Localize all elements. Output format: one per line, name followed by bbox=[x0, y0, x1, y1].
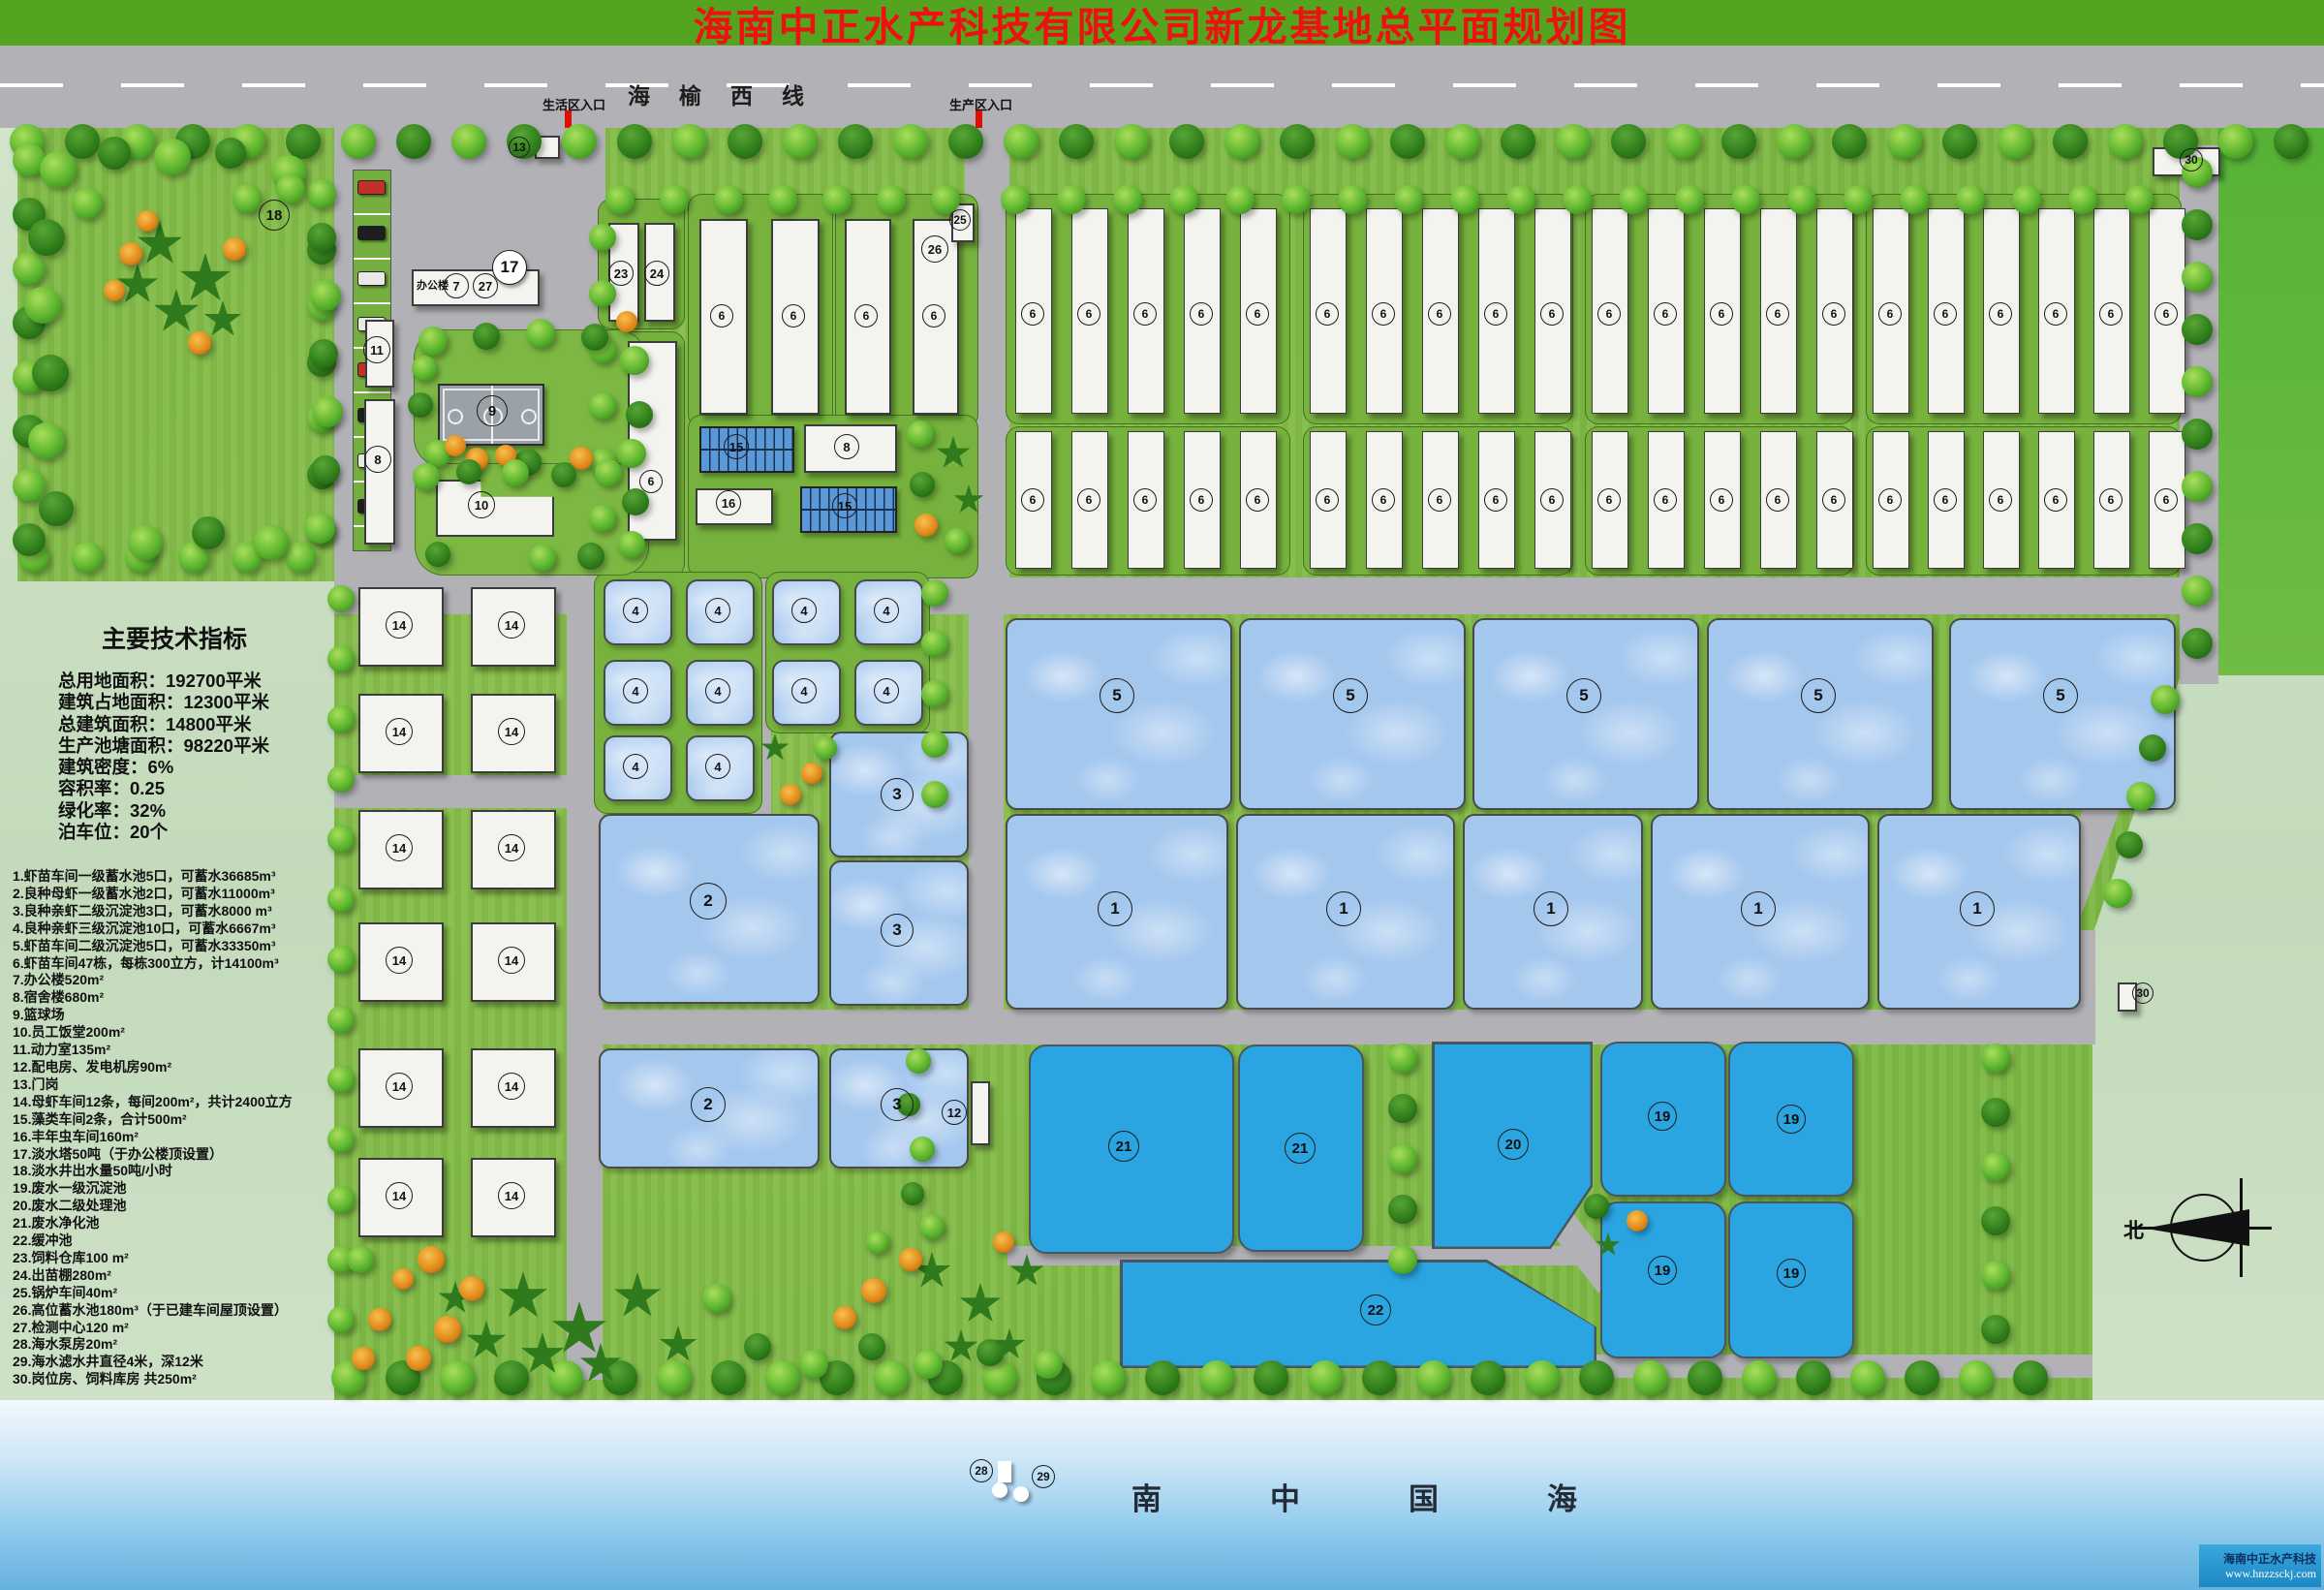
legend-item: 15.藻类车间2条，合计500m² bbox=[13, 1111, 293, 1129]
flowering-tree-icon bbox=[406, 1346, 431, 1371]
flowering-tree-icon bbox=[119, 242, 142, 265]
tree-icon bbox=[1525, 1360, 1560, 1395]
tree-icon bbox=[589, 392, 616, 420]
tree-icon bbox=[1169, 185, 1198, 214]
tree-icon bbox=[2274, 124, 2309, 159]
tree-icon bbox=[24, 287, 61, 324]
generator-12 bbox=[971, 1081, 990, 1145]
tree-icon bbox=[921, 781, 948, 808]
map-marker-6: 6 bbox=[1021, 488, 1044, 512]
tree-icon bbox=[620, 346, 649, 375]
tree-icon bbox=[2116, 831, 2143, 858]
tree-icon bbox=[1887, 124, 1922, 159]
tree-icon bbox=[396, 124, 431, 159]
tree-icon bbox=[660, 185, 689, 214]
tree-icon bbox=[2182, 471, 2213, 502]
watermark-company: 海南中正水产科技 bbox=[2223, 1552, 2316, 1567]
legend-item: 2.良种母虾一级蓄水池2口，可蓄水11000m³ bbox=[13, 886, 293, 903]
tree-icon bbox=[622, 488, 649, 515]
tree-icon bbox=[502, 459, 529, 486]
tree-icon bbox=[1506, 185, 1535, 214]
tree-icon bbox=[327, 886, 355, 913]
road-name: 海榆西线 bbox=[628, 78, 833, 110]
filter-well-shape bbox=[992, 1482, 1007, 1498]
tree-icon bbox=[1850, 1360, 1885, 1395]
tree-icon bbox=[72, 188, 103, 219]
map-marker-14: 14 bbox=[386, 1182, 413, 1209]
tree-icon bbox=[1611, 124, 1646, 159]
site-plan-canvas: 海榆西线 海南中正水产科技有限公司新龙基地总平面规划图 生活区入口 生产区入口 … bbox=[0, 0, 2324, 1590]
map-marker-4: 4 bbox=[705, 754, 730, 779]
map-marker-6: 6 bbox=[1372, 488, 1395, 512]
map-marker-24: 24 bbox=[644, 261, 669, 286]
page-title: 海南中正水产科技有限公司新龙基地总平面规划图 bbox=[694, 0, 1631, 52]
tree-icon bbox=[562, 124, 597, 159]
tree-icon bbox=[473, 323, 500, 350]
tree-icon bbox=[327, 645, 355, 672]
map-marker-6: 6 bbox=[1766, 488, 1789, 512]
tree-icon bbox=[838, 124, 873, 159]
legend-item: 24.出苗棚280m² bbox=[13, 1267, 293, 1285]
map-marker-6: 6 bbox=[1190, 488, 1213, 512]
map-marker-14: 14 bbox=[498, 1073, 525, 1100]
tech-line: 绿化率：32% bbox=[58, 800, 349, 822]
tree-icon bbox=[2182, 628, 2213, 659]
tree-icon bbox=[1335, 124, 1370, 159]
tree-icon bbox=[1282, 185, 1311, 214]
tree-icon bbox=[327, 1066, 355, 1093]
legend-item: 3.良种亲虾二级沉淀池3口，可蓄水8000 m³ bbox=[13, 903, 293, 920]
tree-icon bbox=[589, 280, 616, 307]
tree-icon bbox=[1563, 185, 1592, 214]
tree-icon bbox=[456, 459, 481, 484]
map-marker-4: 4 bbox=[623, 678, 648, 703]
map-marker-6: 6 bbox=[1077, 302, 1100, 326]
flowering-tree-icon bbox=[833, 1306, 856, 1329]
map-marker-29: 29 bbox=[1032, 1465, 1055, 1488]
tree-icon bbox=[311, 455, 340, 484]
map-marker-6: 6 bbox=[1654, 302, 1677, 326]
tree-icon bbox=[2124, 185, 2154, 214]
tree-icon bbox=[858, 1333, 885, 1360]
tree-icon bbox=[327, 1306, 355, 1333]
tree-icon bbox=[276, 174, 305, 203]
map-marker-4: 4 bbox=[623, 598, 648, 623]
tree-icon bbox=[526, 319, 555, 348]
offsite-green-right bbox=[2218, 128, 2324, 675]
tree-icon bbox=[728, 124, 762, 159]
legend-item: 6.虾苗车间47栋，每栋300立方，计14100m³ bbox=[13, 955, 293, 973]
tree-icon bbox=[2139, 734, 2166, 762]
technical-indicators: 主要技术指标 总用地面积：192700平米建筑占地面积：12300平米总建筑面积… bbox=[58, 620, 349, 843]
tree-icon bbox=[1998, 124, 2032, 159]
flowering-tree-icon bbox=[368, 1308, 391, 1331]
tree-icon bbox=[1004, 124, 1038, 159]
tree-icon bbox=[413, 463, 440, 490]
legend-item: 23.饲料仓库100 m² bbox=[13, 1250, 293, 1267]
tree-icon bbox=[2053, 124, 2088, 159]
tree-icon bbox=[98, 137, 131, 170]
map-marker-14: 14 bbox=[386, 611, 413, 639]
tree-icon bbox=[657, 1360, 692, 1395]
map-marker-6: 6 bbox=[639, 470, 663, 493]
tree-icon bbox=[1091, 1360, 1126, 1395]
tree-icon bbox=[1388, 1044, 1417, 1073]
map-marker-6: 6 bbox=[854, 304, 878, 327]
tree-icon bbox=[412, 356, 437, 381]
court-circle bbox=[521, 409, 537, 424]
map-marker-14: 14 bbox=[498, 947, 525, 974]
tree-icon bbox=[2126, 782, 2155, 811]
tree-icon bbox=[874, 1360, 909, 1395]
map-marker-11: 11 bbox=[363, 336, 390, 363]
flowering-tree-icon bbox=[137, 210, 158, 232]
map-marker-4: 4 bbox=[791, 598, 817, 623]
pond bbox=[1707, 618, 1934, 810]
legend-item: 21.废水净化池 bbox=[13, 1215, 293, 1232]
map-marker-3: 3 bbox=[881, 914, 914, 947]
tree-icon bbox=[72, 542, 103, 573]
map-marker-6: 6 bbox=[1710, 488, 1733, 512]
tree-icon bbox=[327, 826, 355, 853]
map-marker-14: 14 bbox=[498, 611, 525, 639]
legend-item: 13.门岗 bbox=[13, 1076, 293, 1094]
tree-icon bbox=[1584, 1194, 1609, 1219]
map-marker-19: 19 bbox=[1777, 1259, 1806, 1288]
map-marker-6: 6 bbox=[2099, 488, 2123, 512]
tree-icon bbox=[307, 223, 336, 252]
map-marker-9: 9 bbox=[477, 395, 508, 426]
tree-icon bbox=[1254, 1360, 1288, 1395]
flowering-tree-icon bbox=[801, 763, 822, 784]
tree-icon bbox=[1501, 124, 1535, 159]
flowering-tree-icon bbox=[616, 311, 637, 332]
tree-icon bbox=[13, 469, 46, 502]
compass-north-label: 北 bbox=[2123, 1215, 2144, 1244]
map-marker-1: 1 bbox=[1960, 891, 1995, 926]
flowering-tree-icon bbox=[434, 1316, 461, 1343]
tree-icon bbox=[921, 731, 948, 758]
tree-icon bbox=[307, 179, 336, 208]
map-marker-6: 6 bbox=[1597, 302, 1621, 326]
flowering-tree-icon bbox=[418, 1246, 445, 1273]
map-marker-5: 5 bbox=[1801, 678, 1836, 713]
map-marker-5: 5 bbox=[1566, 678, 1601, 713]
tree-icon bbox=[425, 542, 450, 567]
tree-icon bbox=[451, 124, 486, 159]
map-marker-6: 6 bbox=[1021, 302, 1044, 326]
tree-icon bbox=[906, 1048, 931, 1074]
tree-icon bbox=[1169, 124, 1204, 159]
tree-icon bbox=[617, 439, 646, 468]
tree-icon bbox=[1225, 185, 1255, 214]
map-marker-6: 6 bbox=[1710, 302, 1733, 326]
tree-icon bbox=[1787, 185, 1816, 214]
flowering-tree-icon bbox=[914, 514, 938, 537]
tree-icon bbox=[1619, 185, 1648, 214]
map-marker-6: 6 bbox=[1540, 488, 1564, 512]
tree-icon bbox=[1394, 185, 1423, 214]
tree-icon bbox=[494, 1360, 529, 1395]
road bbox=[969, 614, 1004, 1044]
tree-icon bbox=[1777, 124, 1812, 159]
map-marker-6: 6 bbox=[1372, 302, 1395, 326]
road bbox=[334, 775, 567, 808]
tree-icon bbox=[1666, 124, 1701, 159]
legend-item: 10.员工饭堂200m² bbox=[13, 1024, 293, 1042]
tree-icon bbox=[440, 1360, 475, 1395]
flowering-tree-icon bbox=[352, 1347, 375, 1370]
pond bbox=[1006, 618, 1232, 810]
flowering-tree-icon bbox=[993, 1231, 1014, 1253]
tree-icon bbox=[312, 396, 343, 427]
map-marker-1: 1 bbox=[1098, 891, 1132, 926]
map-marker-6: 6 bbox=[2154, 302, 2178, 326]
tree-icon bbox=[605, 185, 635, 214]
map-marker-6: 6 bbox=[1934, 488, 1957, 512]
tree-icon bbox=[65, 124, 100, 159]
map-marker-6: 6 bbox=[1484, 302, 1507, 326]
tree-icon bbox=[919, 1214, 945, 1239]
tree-icon bbox=[702, 1284, 731, 1313]
map-marker-14: 14 bbox=[386, 718, 413, 745]
legend-item: 28.海水泵房20m² bbox=[13, 1336, 293, 1354]
map-marker-2: 2 bbox=[690, 883, 727, 920]
tree-icon bbox=[711, 1360, 746, 1395]
tree-icon bbox=[1981, 1044, 2010, 1073]
legend-item: 12.配电房、发电机房90m² bbox=[13, 1059, 293, 1076]
tree-icon bbox=[1796, 1360, 1831, 1395]
technical-indicators-title: 主要技术指标 bbox=[58, 620, 291, 655]
map-marker-22: 22 bbox=[1360, 1294, 1391, 1325]
tree-icon bbox=[39, 491, 74, 526]
tree-icon bbox=[1388, 1094, 1417, 1123]
tree-icon bbox=[28, 422, 65, 459]
legend-item: 29.海水滤水井直径4米，深12米 bbox=[13, 1354, 293, 1371]
map-marker-14: 14 bbox=[386, 947, 413, 974]
map-marker-6: 6 bbox=[782, 304, 805, 327]
map-marker-28: 28 bbox=[970, 1459, 993, 1482]
map-marker-6: 6 bbox=[2044, 488, 2067, 512]
map-marker-21: 21 bbox=[1285, 1133, 1316, 1164]
tree-icon bbox=[2182, 366, 2213, 397]
map-marker-5: 5 bbox=[1100, 678, 1134, 713]
tech-line: 总建筑面积：14800平米 bbox=[58, 714, 349, 735]
map-marker-6: 6 bbox=[1246, 302, 1269, 326]
map-marker-6: 6 bbox=[2044, 302, 2067, 326]
tree-icon bbox=[1471, 1360, 1505, 1395]
tech-line: 泊车位：20个 bbox=[58, 822, 349, 843]
map-marker-19: 19 bbox=[1648, 1102, 1677, 1131]
map-marker-1: 1 bbox=[1534, 891, 1568, 926]
pond bbox=[1239, 618, 1466, 810]
tree-icon bbox=[765, 1360, 800, 1395]
tree-icon bbox=[1199, 1360, 1234, 1395]
map-marker-14: 14 bbox=[386, 1073, 413, 1100]
tree-icon bbox=[589, 224, 616, 251]
tree-icon bbox=[192, 516, 225, 549]
tree-icon bbox=[32, 355, 69, 391]
map-marker-4: 4 bbox=[623, 754, 648, 779]
tree-icon bbox=[1959, 1360, 1994, 1395]
tree-icon bbox=[408, 392, 433, 418]
tree-icon bbox=[2151, 685, 2180, 714]
map-marker-6: 6 bbox=[1597, 488, 1621, 512]
tree-icon bbox=[341, 124, 376, 159]
map-marker-10: 10 bbox=[468, 491, 495, 518]
legend-item: 8.宿舍楼680m² bbox=[13, 989, 293, 1007]
tree-icon bbox=[595, 459, 622, 486]
map-marker-6: 6 bbox=[1133, 302, 1157, 326]
map-marker-6: 6 bbox=[1133, 488, 1157, 512]
map-marker-6: 6 bbox=[1654, 488, 1677, 512]
map-marker-1: 1 bbox=[1741, 891, 1776, 926]
map-marker-16: 16 bbox=[716, 490, 741, 515]
map-marker-6: 6 bbox=[2154, 488, 2178, 512]
tree-icon bbox=[1388, 1195, 1417, 1224]
tree-icon bbox=[1981, 1261, 2010, 1290]
road-centerline bbox=[0, 83, 2324, 87]
map-marker-6: 6 bbox=[1822, 302, 1845, 326]
tree-icon bbox=[1832, 124, 1867, 159]
tree-icon bbox=[2013, 1360, 2048, 1395]
map-marker-6: 6 bbox=[1316, 488, 1339, 512]
tree-icon bbox=[910, 1137, 935, 1162]
tree-icon bbox=[327, 765, 355, 793]
tree-icon bbox=[551, 462, 576, 487]
map-marker-1: 1 bbox=[1326, 891, 1361, 926]
map-marker-5: 5 bbox=[1333, 678, 1368, 713]
map-marker-6: 6 bbox=[1878, 488, 1902, 512]
map-marker-4: 4 bbox=[705, 598, 730, 623]
pump-house-shape bbox=[998, 1461, 1011, 1482]
tree-icon bbox=[327, 1006, 355, 1033]
tree-icon bbox=[327, 1186, 355, 1213]
tree-icon bbox=[1362, 1360, 1397, 1395]
tree-icon bbox=[2182, 576, 2213, 607]
tree-icon bbox=[617, 124, 652, 159]
map-marker-15: 15 bbox=[832, 493, 857, 518]
map-marker-19: 19 bbox=[1648, 1256, 1677, 1285]
tree-icon bbox=[1388, 1245, 1417, 1274]
legend-item: 14.母虾车间12条，每间200m²，共计2400立方 bbox=[13, 1094, 293, 1111]
tree-icon bbox=[347, 1246, 374, 1273]
map-marker-4: 4 bbox=[791, 678, 817, 703]
tree-icon bbox=[154, 139, 191, 175]
tree-icon bbox=[1905, 1360, 1939, 1395]
tree-icon bbox=[1059, 124, 1094, 159]
tree-icon bbox=[304, 513, 335, 544]
legend-item: 7.办公楼520m² bbox=[13, 972, 293, 989]
tree-icon bbox=[285, 542, 316, 573]
flowering-tree-icon bbox=[445, 435, 466, 456]
flowering-tree-icon bbox=[1627, 1210, 1648, 1231]
map-marker-14: 14 bbox=[498, 718, 525, 745]
tree-icon bbox=[1942, 124, 1977, 159]
title-bar: 海南中正水产科技有限公司新龙基地总平面规划图 bbox=[0, 0, 2324, 46]
legend-item: 19.废水一级沉淀池 bbox=[13, 1180, 293, 1198]
map-marker-4: 4 bbox=[705, 678, 730, 703]
map-marker-30: 30 bbox=[2180, 148, 2203, 171]
map-marker-27: 27 bbox=[473, 273, 498, 298]
tree-icon bbox=[2182, 523, 2213, 554]
legend-item: 5.虾苗车间二级沉淀池5口，可蓄水33350m³ bbox=[13, 938, 293, 955]
map-marker-14: 14 bbox=[498, 834, 525, 861]
tree-icon bbox=[1450, 185, 1479, 214]
tree-icon bbox=[13, 523, 46, 556]
tree-icon bbox=[672, 124, 707, 159]
tree-icon bbox=[1556, 124, 1591, 159]
map-marker-6: 6 bbox=[1540, 302, 1564, 326]
flowering-tree-icon bbox=[861, 1278, 886, 1303]
map-marker-4: 4 bbox=[874, 678, 899, 703]
map-marker-6: 6 bbox=[1766, 302, 1789, 326]
tree-icon bbox=[1145, 1360, 1180, 1395]
tree-icon bbox=[1731, 185, 1760, 214]
map-marker-25: 25 bbox=[949, 209, 971, 231]
tree-icon bbox=[13, 252, 46, 285]
legend-item: 30.岗位房、饲料库房 共250m² bbox=[13, 1371, 293, 1388]
flowering-tree-icon bbox=[392, 1268, 414, 1290]
tree-icon bbox=[2182, 209, 2213, 240]
tree-icon bbox=[1113, 185, 1142, 214]
map-marker-14: 14 bbox=[498, 1182, 525, 1209]
tree-icon bbox=[921, 630, 948, 657]
map-marker-6: 6 bbox=[1316, 302, 1339, 326]
legend-item: 9.篮球场 bbox=[13, 1007, 293, 1024]
legend-item: 22.缓冲池 bbox=[13, 1232, 293, 1250]
legend-item: 16.丰年虫车间160m² bbox=[13, 1129, 293, 1146]
map-marker-8: 8 bbox=[364, 446, 391, 473]
tree-icon bbox=[910, 472, 935, 497]
tree-icon bbox=[1280, 124, 1315, 159]
tree-icon bbox=[814, 736, 837, 760]
map-marker-4: 4 bbox=[874, 598, 899, 623]
tree-icon bbox=[1390, 124, 1425, 159]
tree-icon bbox=[1688, 1360, 1722, 1395]
sea-label: 南中国海 bbox=[1131, 1475, 1686, 1518]
legend-item: 27.检测中心120 m² bbox=[13, 1320, 293, 1337]
tree-icon bbox=[1057, 185, 1086, 214]
map-marker-19: 19 bbox=[1777, 1105, 1806, 1134]
tree-icon bbox=[28, 219, 65, 256]
tree-icon bbox=[310, 280, 341, 311]
map-marker-6: 6 bbox=[1190, 302, 1213, 326]
filter-well-shape bbox=[1013, 1486, 1029, 1502]
tree-icon bbox=[327, 705, 355, 733]
map-marker-6: 6 bbox=[710, 304, 733, 327]
tree-icon bbox=[128, 525, 163, 560]
tree-icon bbox=[907, 421, 934, 448]
tree-icon bbox=[914, 1350, 943, 1379]
map-marker-6: 6 bbox=[922, 304, 945, 327]
tree-icon bbox=[418, 327, 448, 356]
tree-icon bbox=[1001, 185, 1030, 214]
car-icon bbox=[357, 226, 386, 240]
legend-item: 4.良种亲虾三级沉淀池10口，可蓄水6667m³ bbox=[13, 920, 293, 938]
map-marker-15: 15 bbox=[724, 434, 749, 459]
legend-item: 11.动力室135m² bbox=[13, 1042, 293, 1059]
tree-icon bbox=[1224, 124, 1259, 159]
map-marker-6: 6 bbox=[1077, 488, 1100, 512]
map-marker-30: 30 bbox=[2132, 982, 2154, 1004]
tree-icon bbox=[2108, 124, 2143, 159]
tech-line: 容积率：0.25 bbox=[58, 778, 349, 799]
tree-icon bbox=[921, 579, 948, 607]
tree-icon bbox=[1579, 1360, 1614, 1395]
map-marker-6: 6 bbox=[1428, 302, 1451, 326]
tree-icon bbox=[1721, 124, 1756, 159]
